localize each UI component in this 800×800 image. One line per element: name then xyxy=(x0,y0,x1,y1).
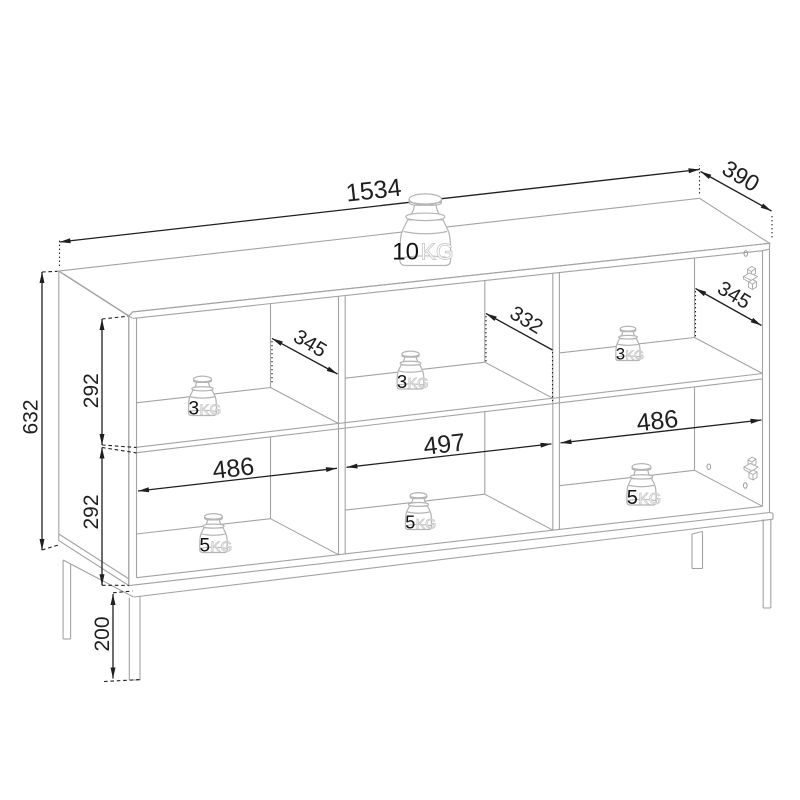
svg-text:10: 10 xyxy=(392,239,419,266)
svg-text:KG: KG xyxy=(625,348,644,363)
svg-text:5: 5 xyxy=(200,536,211,557)
svg-text:292: 292 xyxy=(80,494,103,529)
svg-text:KG: KG xyxy=(408,376,429,392)
svg-text:200: 200 xyxy=(91,616,114,651)
svg-text:3: 3 xyxy=(616,346,625,364)
svg-text:5: 5 xyxy=(627,487,638,509)
svg-text:3: 3 xyxy=(397,371,407,392)
svg-text:KG: KG xyxy=(200,402,222,419)
svg-text:5: 5 xyxy=(405,513,415,533)
svg-text:292: 292 xyxy=(80,373,103,408)
svg-text:497: 497 xyxy=(422,428,467,460)
svg-text:632: 632 xyxy=(20,399,43,434)
svg-text:KG: KG xyxy=(638,491,661,508)
svg-text:KG: KG xyxy=(421,239,454,265)
svg-text:KG: KG xyxy=(211,539,233,556)
svg-text:486: 486 xyxy=(211,452,256,484)
svg-text:486: 486 xyxy=(635,405,680,437)
svg-text:KG: KG xyxy=(416,517,437,533)
svg-text:3: 3 xyxy=(189,399,200,420)
